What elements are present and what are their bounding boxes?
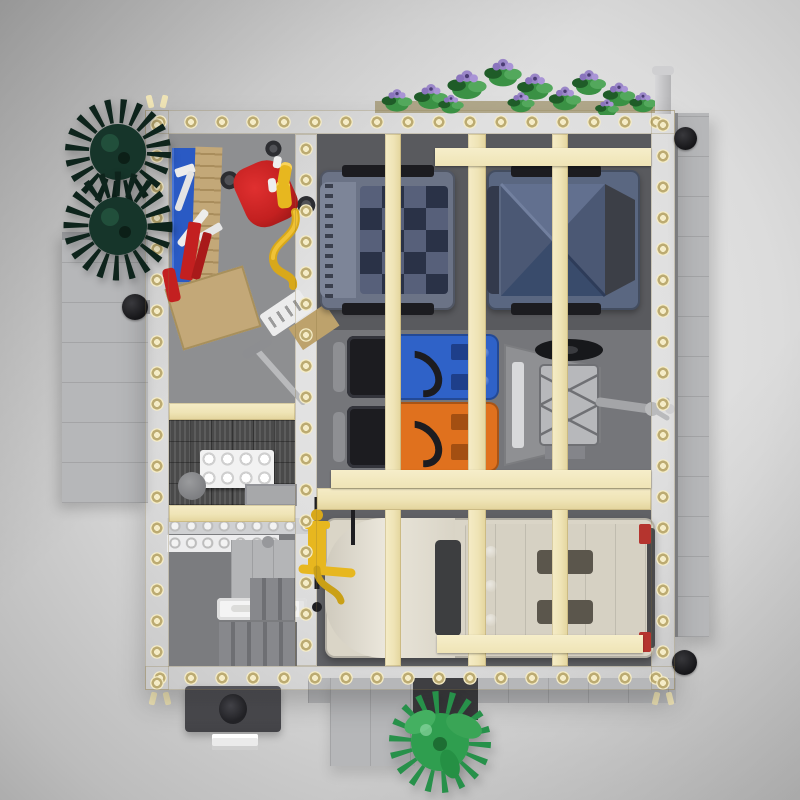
roof-beam-workshop-2 bbox=[169, 505, 295, 522]
wall-lamp-top-right bbox=[674, 127, 697, 150]
frame-right bbox=[651, 110, 675, 690]
truckw-stud-3 bbox=[485, 614, 497, 626]
blue-body-slot-2 bbox=[451, 374, 469, 390]
chimney-vent bbox=[655, 72, 671, 114]
engine-hoist-trailer bbox=[500, 330, 675, 480]
stud-plate-bottom bbox=[437, 635, 643, 653]
blue-body-slot-1 bbox=[451, 344, 469, 360]
stud-plate-top bbox=[435, 148, 651, 166]
step-block bbox=[250, 578, 295, 620]
office-stool bbox=[178, 472, 206, 500]
truckw-taillight-top bbox=[639, 524, 651, 544]
office-table bbox=[200, 450, 274, 488]
corner-clip-bottom-right bbox=[653, 689, 673, 705]
cabinet-knob bbox=[262, 536, 274, 548]
roof-beam-workshop-1 bbox=[169, 403, 295, 420]
truck2-front-edge bbox=[487, 186, 499, 294]
chimney-cap bbox=[652, 66, 674, 75]
camera-connector bbox=[212, 734, 258, 750]
roof-beam-d bbox=[552, 134, 568, 666]
orange-roller bbox=[333, 412, 345, 462]
wall-lamp-bottom-right bbox=[672, 650, 697, 675]
staircase bbox=[219, 622, 297, 666]
truckw-stud-2 bbox=[485, 580, 497, 592]
corner-clip-bottom-left bbox=[150, 689, 170, 705]
garden-bush bbox=[378, 688, 503, 798]
roof-beam-garage bbox=[317, 488, 651, 510]
garage-building bbox=[145, 110, 675, 690]
camera-lens bbox=[219, 694, 247, 724]
orange-body-slot-1 bbox=[451, 414, 469, 430]
roof-beam-b bbox=[385, 134, 401, 666]
truckw-stud-1 bbox=[485, 546, 497, 558]
flower-planter-row bbox=[375, 55, 655, 115]
stud-plate-mid bbox=[331, 470, 651, 488]
cart-grip-white-1 bbox=[268, 178, 277, 193]
frame-bottom bbox=[145, 666, 675, 690]
orange-body-slot-2 bbox=[451, 444, 469, 460]
lego-garage-top-view bbox=[0, 0, 800, 800]
truck1-cab bbox=[320, 182, 356, 298]
truckw-windshield bbox=[435, 540, 461, 636]
right-side-wall bbox=[675, 113, 709, 637]
office-desk bbox=[245, 484, 297, 506]
conifer-tree-2 bbox=[60, 168, 176, 284]
roof-beam-a bbox=[295, 134, 317, 666]
blue-roller bbox=[333, 342, 345, 392]
roof-beam-c bbox=[468, 134, 486, 666]
truck1-cargo-deck bbox=[360, 186, 448, 294]
